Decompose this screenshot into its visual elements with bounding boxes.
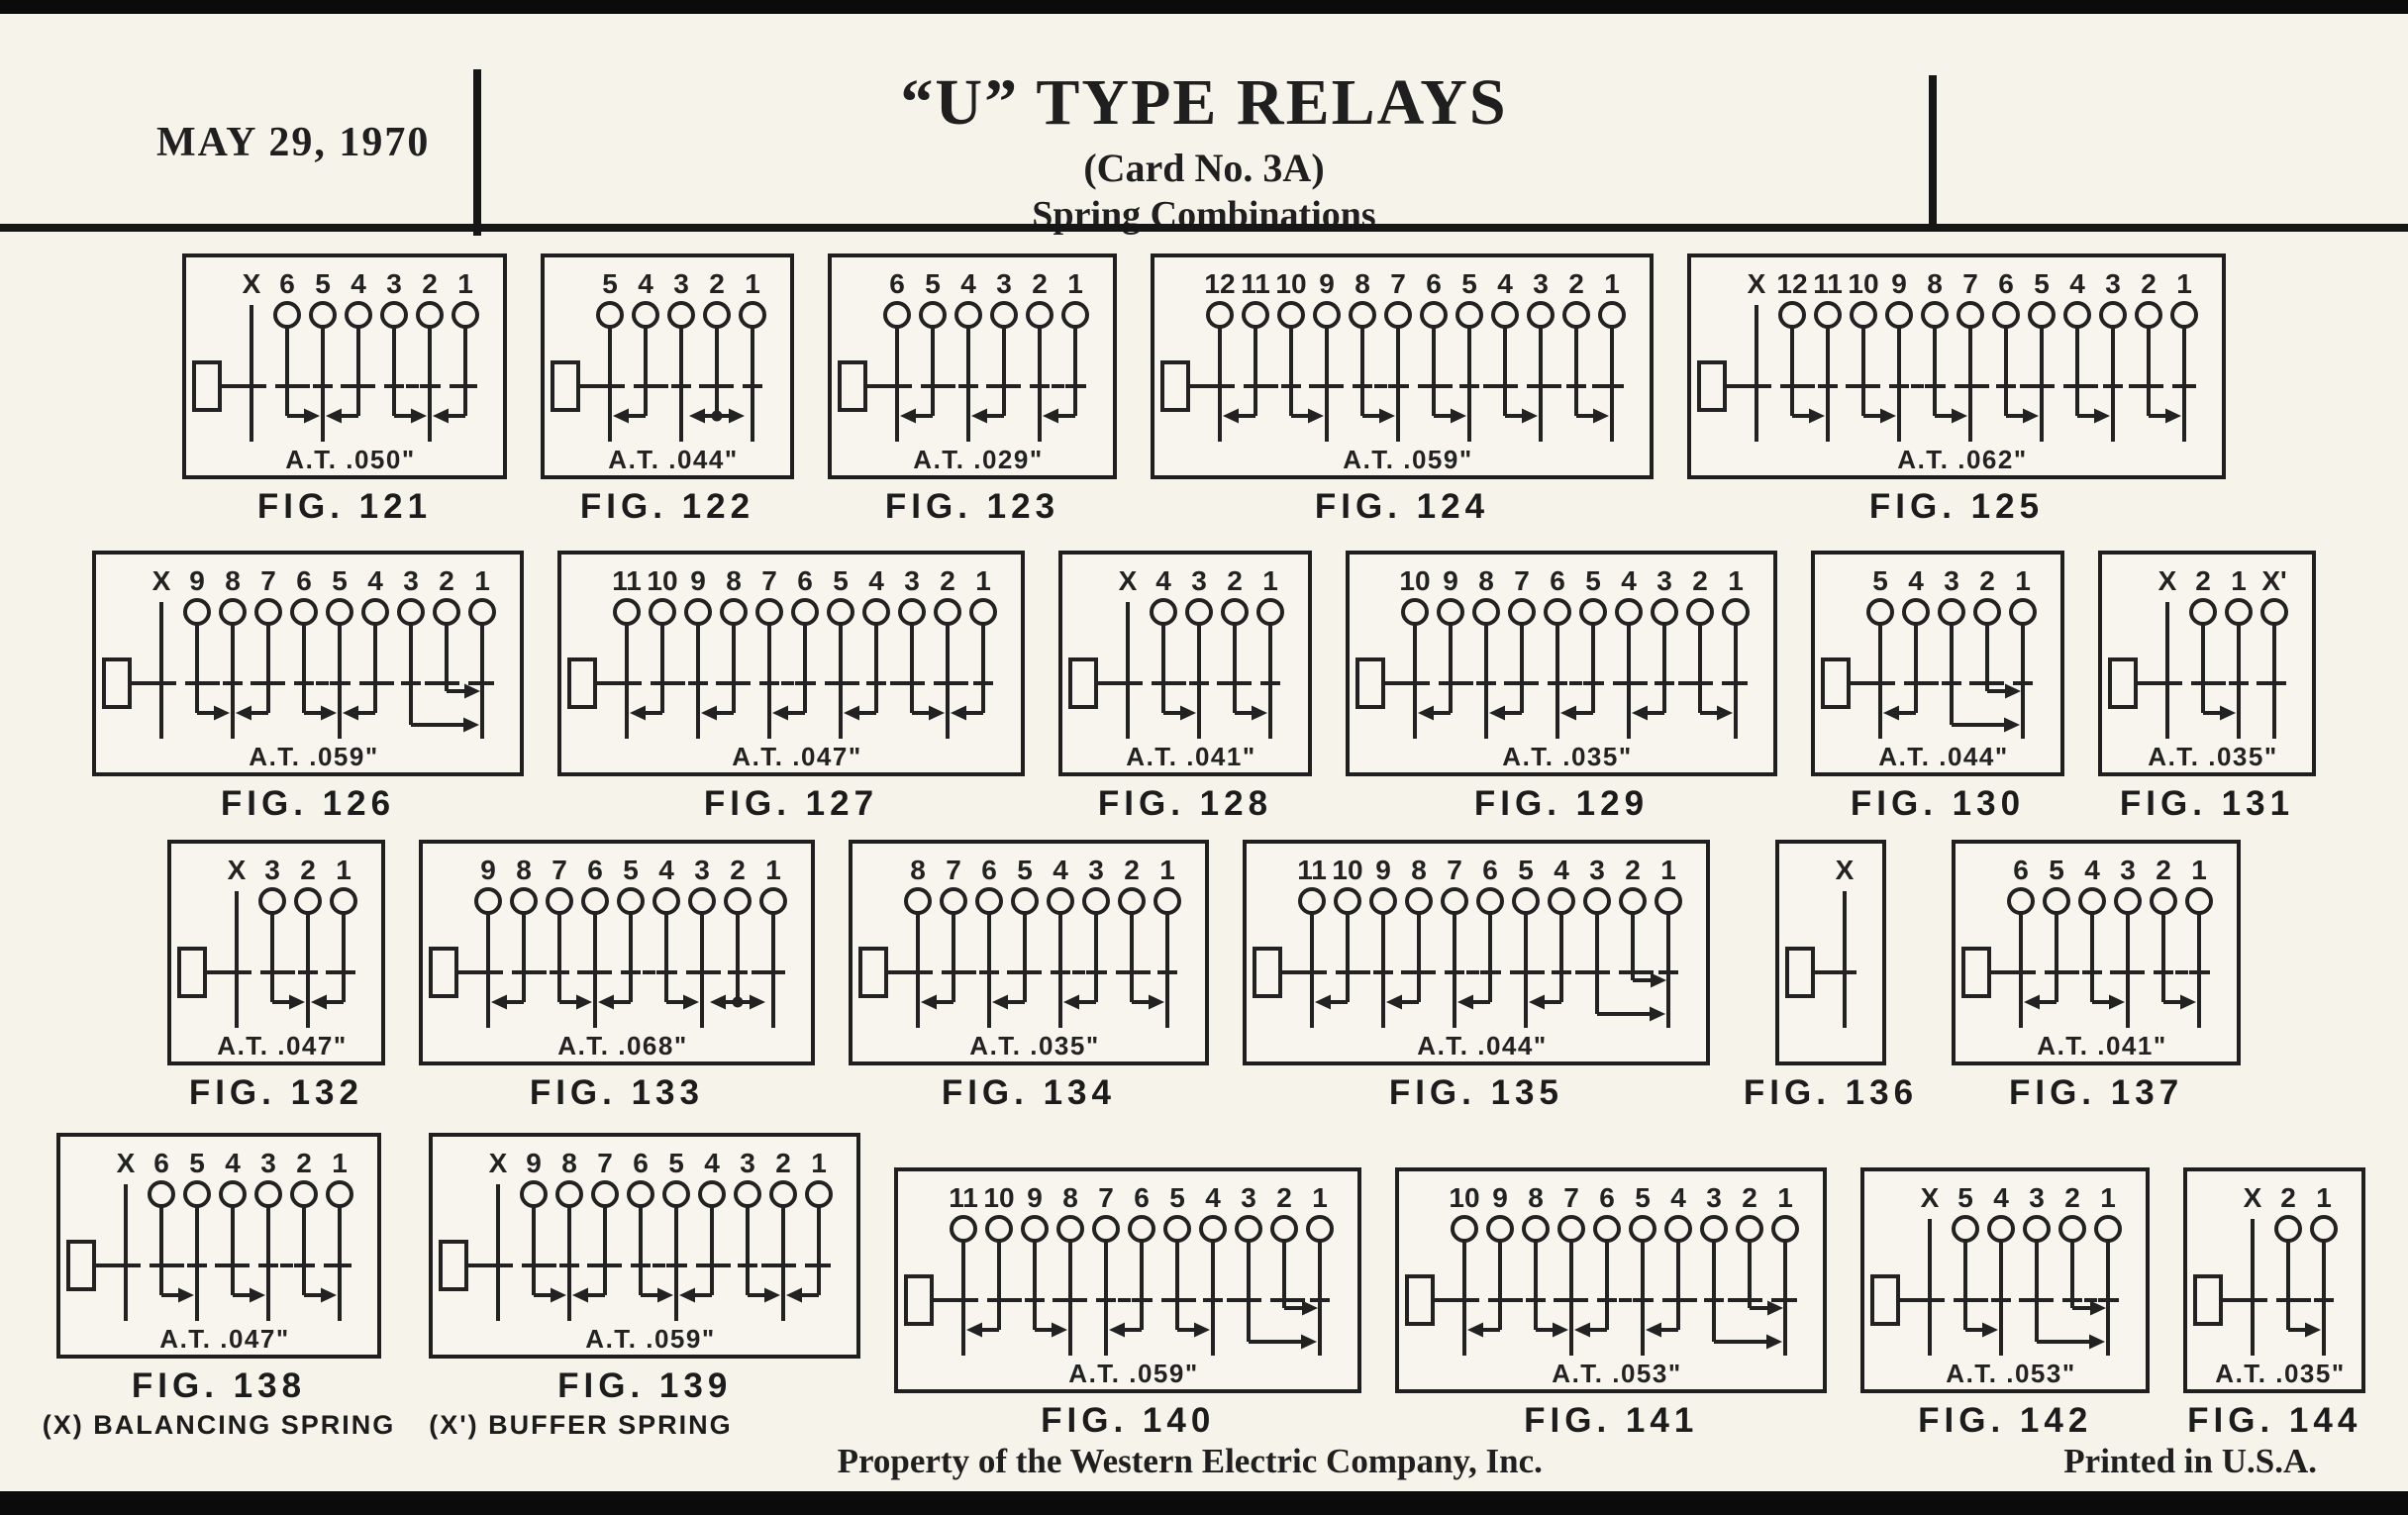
header: MAY 29, 1970 “U” TYPE RELAYS (Card No. 3… xyxy=(0,14,2408,227)
header-rule xyxy=(0,224,2408,232)
figure-box: X654321A.T. .050" xyxy=(182,253,507,479)
figure-note: (X) BALANCING SPRING xyxy=(43,1410,396,1441)
svg-text:X: X xyxy=(1921,1182,1940,1213)
svg-text:A.T. .053": A.T. .053" xyxy=(1947,1359,2076,1388)
figure-caption: FIG. 129 xyxy=(1474,784,1649,824)
svg-text:4: 4 xyxy=(367,565,383,596)
svg-text:A.T. .050": A.T. .050" xyxy=(285,445,415,474)
footer: Property of the Western Electric Company… xyxy=(0,1442,2408,1485)
svg-text:4: 4 xyxy=(638,268,653,299)
svg-text:6: 6 xyxy=(633,1148,649,1178)
svg-text:11: 11 xyxy=(1813,268,1843,299)
svg-text:10: 10 xyxy=(984,1182,1015,1213)
svg-text:12: 12 xyxy=(1776,268,1807,299)
svg-text:2: 2 xyxy=(439,565,454,596)
svg-text:3: 3 xyxy=(1191,565,1207,596)
svg-text:7: 7 xyxy=(761,565,777,596)
svg-text:4: 4 xyxy=(351,268,366,299)
svg-text:5: 5 xyxy=(1585,565,1601,596)
figure-box: 121110987654321A.T. .059" xyxy=(1151,253,1654,479)
scan-edge-top xyxy=(0,0,2408,14)
svg-text:X: X xyxy=(2158,565,2177,596)
svg-text:8: 8 xyxy=(225,565,241,596)
svg-text:X: X xyxy=(117,1148,136,1178)
svg-text:A.T. .059": A.T. .059" xyxy=(249,742,378,771)
svg-text:6: 6 xyxy=(1482,855,1498,885)
page-title: “U” TYPE RELAYS xyxy=(900,65,1507,141)
spring-diagram: X321A.T. .047" xyxy=(171,844,381,1061)
spring-diagram: X54321A.T. .053" xyxy=(1864,1171,2146,1389)
svg-text:8: 8 xyxy=(1478,565,1494,596)
spring-diagram: 87654321A.T. .035" xyxy=(853,844,1205,1061)
figure-note: (X') BUFFER SPRING xyxy=(429,1410,732,1441)
svg-text:2: 2 xyxy=(2064,1182,2080,1213)
svg-text:10: 10 xyxy=(1450,1182,1480,1213)
svg-text:X: X xyxy=(489,1148,508,1178)
spring-diagram: 654321A.T. .041" xyxy=(1956,844,2237,1061)
svg-text:1: 1 xyxy=(1159,855,1175,885)
svg-text:3: 3 xyxy=(2029,1182,2045,1213)
svg-text:A.T. .035": A.T. .035" xyxy=(2148,742,2277,771)
svg-text:9: 9 xyxy=(1443,565,1458,596)
figure-card-142: X54321A.T. .053"FIG. 142 xyxy=(1860,1167,2150,1441)
printed-note: Printed in U.S.A. xyxy=(2063,1442,2317,1481)
figure-row-3: X321A.T. .047"FIG. 132987654321A.T. .068… xyxy=(0,840,2408,1113)
spring-diagram: 54321A.T. .044" xyxy=(1815,555,2060,772)
svg-text:1: 1 xyxy=(457,268,473,299)
svg-text:5: 5 xyxy=(1957,1182,1973,1213)
svg-text:A.T. .044": A.T. .044" xyxy=(608,445,738,474)
svg-text:9: 9 xyxy=(1891,268,1907,299)
svg-text:A.T. .035": A.T. .035" xyxy=(2216,1359,2346,1388)
figure-caption: FIG. 132 xyxy=(189,1073,363,1113)
title-block: “U” TYPE RELAYS (Card No. 3A) Spring Com… xyxy=(900,65,1507,237)
svg-text:8: 8 xyxy=(1062,1182,1078,1213)
svg-text:1: 1 xyxy=(332,1148,348,1178)
svg-text:9: 9 xyxy=(526,1148,542,1178)
svg-text:3: 3 xyxy=(2105,268,2121,299)
svg-text:3: 3 xyxy=(694,855,710,885)
figure-card-129: 10987654321A.T. .035"FIG. 129 xyxy=(1346,551,1777,824)
svg-text:X: X xyxy=(2244,1182,2262,1213)
svg-text:6: 6 xyxy=(279,268,295,299)
svg-text:1: 1 xyxy=(2176,268,2192,299)
svg-text:7: 7 xyxy=(597,1148,613,1178)
svg-text:1: 1 xyxy=(1728,565,1744,596)
svg-text:4: 4 xyxy=(658,855,674,885)
svg-text:6: 6 xyxy=(1550,565,1565,596)
svg-text:X: X xyxy=(1119,565,1138,596)
svg-text:4: 4 xyxy=(960,268,976,299)
svg-text:5: 5 xyxy=(1017,855,1033,885)
figure-caption: FIG. 127 xyxy=(704,784,878,824)
svg-text:1: 1 xyxy=(811,1148,827,1178)
svg-text:A.T. .047": A.T. .047" xyxy=(217,1031,347,1060)
figure-card-132: X321A.T. .047"FIG. 132 xyxy=(167,840,385,1113)
figure-row-1: X654321A.T. .050"FIG. 12154321A.T. .044"… xyxy=(0,253,2408,527)
svg-text:1: 1 xyxy=(1067,268,1083,299)
figure-box: X4321A.T. .041" xyxy=(1058,551,1312,776)
svg-text:X': X' xyxy=(2261,565,2286,596)
figure-card-123: 654321A.T. .029"FIG. 123 xyxy=(828,253,1117,527)
svg-text:7: 7 xyxy=(1390,268,1406,299)
svg-text:1: 1 xyxy=(765,855,781,885)
figure-box: X321A.T. .047" xyxy=(167,840,385,1065)
svg-text:1: 1 xyxy=(474,565,490,596)
figures-grid: X654321A.T. .050"FIG. 12154321A.T. .044"… xyxy=(0,234,2408,1441)
svg-text:4: 4 xyxy=(704,1148,720,1178)
svg-text:4: 4 xyxy=(2084,855,2100,885)
figure-caption: FIG. 136 xyxy=(1744,1073,1918,1113)
svg-text:7: 7 xyxy=(260,565,276,596)
figure-box: 87654321A.T. .035" xyxy=(849,840,1209,1065)
svg-text:5: 5 xyxy=(189,1148,205,1178)
relay-card-page: MAY 29, 1970 “U” TYPE RELAYS (Card No. 3… xyxy=(0,0,2408,1515)
spring-diagram: 1110987654321A.T. .044" xyxy=(1247,844,1706,1061)
figure-card-133: 987654321A.T. .068"FIG. 133 xyxy=(419,840,815,1113)
svg-text:1: 1 xyxy=(2015,565,2031,596)
svg-text:2: 2 xyxy=(1979,565,1995,596)
figure-card-134: 87654321A.T. .035"FIG. 134 xyxy=(849,840,1209,1113)
figure-box: X54321A.T. .053" xyxy=(1860,1167,2150,1393)
svg-text:8: 8 xyxy=(1927,268,1943,299)
figure-box: X21X'A.T. .035" xyxy=(2098,551,2316,776)
svg-text:9: 9 xyxy=(189,565,205,596)
svg-text:A.T. .047": A.T. .047" xyxy=(159,1324,289,1354)
figure-box: X xyxy=(1775,840,1886,1065)
figure-box: X121110987654321A.T. .062" xyxy=(1687,253,2226,479)
spring-diagram: X987654321A.T. .059" xyxy=(433,1137,856,1355)
figure-caption: FIG. 138 xyxy=(132,1366,306,1406)
figure-caption: FIG. 142 xyxy=(1918,1401,2092,1441)
svg-text:5: 5 xyxy=(833,565,849,596)
figure-card-137: 654321A.T. .041"FIG. 137 xyxy=(1952,840,2241,1113)
svg-text:2: 2 xyxy=(1742,1182,1757,1213)
figure-card-122: 54321A.T. .044"FIG. 122 xyxy=(541,253,794,527)
svg-text:7: 7 xyxy=(1514,565,1530,596)
svg-text:8: 8 xyxy=(726,565,742,596)
svg-text:10: 10 xyxy=(1848,268,1878,299)
figure-box: 54321A.T. .044" xyxy=(541,253,794,479)
figure-caption: FIG. 141 xyxy=(1524,1401,1698,1441)
figure-caption: FIG. 139 xyxy=(557,1366,732,1406)
svg-text:1: 1 xyxy=(1312,1182,1328,1213)
spring-diagram: 10987654321A.T. .035" xyxy=(1350,555,1773,772)
svg-text:7: 7 xyxy=(1962,268,1978,299)
svg-text:1: 1 xyxy=(1262,565,1278,596)
figure-caption: FIG. 128 xyxy=(1098,784,1272,824)
svg-text:1: 1 xyxy=(1604,268,1620,299)
svg-text:3: 3 xyxy=(1088,855,1104,885)
svg-text:11: 11 xyxy=(612,565,642,596)
svg-text:X: X xyxy=(152,565,171,596)
figure-box: X21A.T. .035" xyxy=(2183,1167,2365,1393)
figure-box: 1110987654321A.T. .047" xyxy=(557,551,1025,776)
svg-text:2: 2 xyxy=(1032,268,1048,299)
svg-text:6: 6 xyxy=(153,1148,169,1178)
property-note: Property of the Western Electric Company… xyxy=(838,1442,1543,1481)
svg-text:3: 3 xyxy=(1241,1182,1256,1213)
figure-row-4: X654321A.T. .047"FIG. 138(X) BALANCING S… xyxy=(0,1133,2408,1441)
figure-caption: FIG. 130 xyxy=(1851,784,2025,824)
svg-text:5: 5 xyxy=(1635,1182,1651,1213)
scan-corner-mark xyxy=(2200,0,2408,10)
svg-text:X: X xyxy=(1836,855,1855,885)
svg-text:A.T. .053": A.T. .053" xyxy=(1553,1359,1682,1388)
figure-card-124: 121110987654321A.T. .059"FIG. 124 xyxy=(1151,253,1654,527)
figure-box: 54321A.T. .044" xyxy=(1811,551,2064,776)
svg-text:2: 2 xyxy=(1625,855,1641,885)
svg-text:3: 3 xyxy=(904,565,920,596)
svg-text:9: 9 xyxy=(1319,268,1335,299)
svg-text:3: 3 xyxy=(673,268,689,299)
figure-caption: FIG. 124 xyxy=(1315,487,1489,527)
svg-text:5: 5 xyxy=(602,268,618,299)
svg-text:4: 4 xyxy=(1053,855,1068,885)
svg-text:11: 11 xyxy=(1241,268,1270,299)
svg-text:A.T. .029": A.T. .029" xyxy=(913,445,1043,474)
svg-text:X: X xyxy=(1748,268,1766,299)
figure-row-2: X987654321A.T. .059"FIG. 126111098765432… xyxy=(0,551,2408,824)
figure-box: 10987654321A.T. .053" xyxy=(1395,1167,1827,1393)
svg-text:6: 6 xyxy=(1134,1182,1150,1213)
svg-text:3: 3 xyxy=(386,268,402,299)
figure-caption: FIG. 133 xyxy=(530,1073,704,1113)
svg-text:1: 1 xyxy=(2231,565,2247,596)
svg-text:10: 10 xyxy=(1332,855,1362,885)
svg-text:1: 1 xyxy=(336,855,351,885)
svg-text:X: X xyxy=(243,268,261,299)
figure-caption: FIG. 135 xyxy=(1389,1073,1563,1113)
svg-text:7: 7 xyxy=(946,855,961,885)
figure-caption: FIG. 134 xyxy=(942,1073,1116,1113)
svg-text:4: 4 xyxy=(2069,268,2085,299)
figure-caption: FIG. 144 xyxy=(2187,1401,2361,1441)
figure-box: 10987654321A.T. .035" xyxy=(1346,551,1777,776)
svg-text:8: 8 xyxy=(910,855,926,885)
figure-card-144: X21A.T. .035"FIG. 144 xyxy=(2183,1167,2365,1441)
svg-text:5: 5 xyxy=(315,268,331,299)
header-divider-right xyxy=(1929,75,1937,226)
svg-text:10: 10 xyxy=(647,565,677,596)
svg-text:4: 4 xyxy=(1497,268,1513,299)
figure-card-128: X4321A.T. .041"FIG. 128 xyxy=(1058,551,1312,824)
svg-text:A.T. .035": A.T. .035" xyxy=(969,1031,1099,1060)
svg-text:3: 3 xyxy=(740,1148,755,1178)
svg-text:7: 7 xyxy=(1563,1182,1579,1213)
svg-text:3: 3 xyxy=(996,268,1012,299)
scan-edge-bottom xyxy=(0,1491,2408,1515)
svg-text:3: 3 xyxy=(1706,1182,1722,1213)
svg-text:7: 7 xyxy=(1098,1182,1114,1213)
figure-card-121: X654321A.T. .050"FIG. 121 xyxy=(182,253,507,527)
svg-text:6: 6 xyxy=(797,565,813,596)
figure-card-140: 1110987654321A.T. .059"FIG. 140 xyxy=(894,1167,1361,1441)
svg-text:5: 5 xyxy=(1169,1182,1185,1213)
svg-text:9: 9 xyxy=(1027,1182,1043,1213)
svg-text:4: 4 xyxy=(1993,1182,2009,1213)
figure-card-127: 1110987654321A.T. .047"FIG. 127 xyxy=(557,551,1025,824)
svg-text:5: 5 xyxy=(1461,268,1477,299)
svg-text:5: 5 xyxy=(1518,855,1534,885)
figure-caption: FIG. 121 xyxy=(257,487,432,527)
svg-text:3: 3 xyxy=(264,855,280,885)
figure-card-136: XFIG. 136 xyxy=(1744,840,1918,1113)
spring-diagram: X654321A.T. .050" xyxy=(186,257,503,475)
figure-box: X654321A.T. .047" xyxy=(56,1133,381,1359)
card-number: (Card No. 3A) xyxy=(900,145,1507,191)
svg-text:9: 9 xyxy=(1375,855,1391,885)
figure-box: 1110987654321A.T. .059" xyxy=(894,1167,1361,1393)
svg-text:3: 3 xyxy=(1533,268,1549,299)
svg-text:6: 6 xyxy=(2013,855,2029,885)
svg-text:5: 5 xyxy=(925,268,941,299)
svg-text:2: 2 xyxy=(775,1148,791,1178)
svg-text:3: 3 xyxy=(1589,855,1605,885)
svg-text:6: 6 xyxy=(889,268,905,299)
svg-text:2: 2 xyxy=(1227,565,1243,596)
svg-text:5: 5 xyxy=(2049,855,2064,885)
svg-text:1: 1 xyxy=(975,565,991,596)
svg-text:2: 2 xyxy=(2156,855,2171,885)
svg-text:X: X xyxy=(228,855,247,885)
svg-text:1: 1 xyxy=(745,268,760,299)
svg-text:8: 8 xyxy=(1528,1182,1544,1213)
spring-diagram: 987654321A.T. .068" xyxy=(423,844,811,1061)
svg-text:2: 2 xyxy=(2195,565,2211,596)
figure-card-135: 1110987654321A.T. .044"FIG. 135 xyxy=(1243,840,1710,1113)
svg-text:11: 11 xyxy=(949,1182,978,1213)
svg-text:6: 6 xyxy=(981,855,997,885)
spring-diagram: X4321A.T. .041" xyxy=(1062,555,1308,772)
svg-text:A.T. .044": A.T. .044" xyxy=(1417,1031,1547,1060)
figure-caption: FIG. 137 xyxy=(2009,1073,2183,1113)
svg-text:9: 9 xyxy=(480,855,496,885)
svg-text:4: 4 xyxy=(1908,565,1924,596)
svg-text:3: 3 xyxy=(2120,855,2136,885)
svg-text:2: 2 xyxy=(1692,565,1708,596)
svg-text:A.T. .068": A.T. .068" xyxy=(557,1031,687,1060)
spring-diagram: 1110987654321A.T. .047" xyxy=(561,555,1021,772)
svg-text:6: 6 xyxy=(1426,268,1442,299)
svg-text:2: 2 xyxy=(709,268,725,299)
svg-text:6: 6 xyxy=(1599,1182,1615,1213)
svg-text:2: 2 xyxy=(2280,1182,2296,1213)
svg-text:5: 5 xyxy=(668,1148,684,1178)
figure-card-138: X654321A.T. .047"FIG. 138(X) BALANCING S… xyxy=(43,1133,396,1441)
figure-caption: FIG. 140 xyxy=(1041,1401,1215,1441)
figure-caption: FIG. 125 xyxy=(1869,487,2044,527)
svg-text:A.T. .041": A.T. .041" xyxy=(2037,1031,2166,1060)
figure-card-141: 10987654321A.T. .053"FIG. 141 xyxy=(1395,1167,1827,1441)
figure-box: 654321A.T. .041" xyxy=(1952,840,2241,1065)
svg-text:1: 1 xyxy=(2100,1182,2116,1213)
svg-text:12: 12 xyxy=(1204,268,1235,299)
svg-text:10: 10 xyxy=(1399,565,1430,596)
svg-text:A.T. .044": A.T. .044" xyxy=(1878,742,2008,771)
spring-diagram: 10987654321A.T. .053" xyxy=(1399,1171,1823,1389)
svg-text:A.T. .059": A.T. .059" xyxy=(586,1324,716,1354)
svg-text:2: 2 xyxy=(730,855,746,885)
spring-diagram: X xyxy=(1779,844,1882,1061)
svg-text:8: 8 xyxy=(516,855,532,885)
svg-text:5: 5 xyxy=(1872,565,1888,596)
svg-text:6: 6 xyxy=(1998,268,2014,299)
svg-text:2: 2 xyxy=(1568,268,1584,299)
svg-text:5: 5 xyxy=(623,855,639,885)
spring-diagram: 121110987654321A.T. .059" xyxy=(1154,257,1650,475)
svg-text:A.T. .047": A.T. .047" xyxy=(732,742,861,771)
svg-text:A.T. .059": A.T. .059" xyxy=(1343,445,1472,474)
svg-text:9: 9 xyxy=(1492,1182,1508,1213)
svg-text:A.T. .035": A.T. .035" xyxy=(1502,742,1632,771)
svg-text:A.T. .062": A.T. .062" xyxy=(1897,445,2027,474)
svg-text:4: 4 xyxy=(1205,1182,1221,1213)
svg-text:2: 2 xyxy=(1276,1182,1292,1213)
svg-text:1: 1 xyxy=(1660,855,1676,885)
svg-text:3: 3 xyxy=(1656,565,1672,596)
figure-caption: FIG. 123 xyxy=(885,487,1059,527)
svg-text:A.T. .059": A.T. .059" xyxy=(1069,1359,1199,1388)
issue-date: MAY 29, 1970 xyxy=(156,119,430,166)
figure-card-125: X121110987654321A.T. .062"FIG. 125 xyxy=(1687,253,2226,527)
header-divider-left xyxy=(473,69,481,236)
spring-diagram: X21A.T. .035" xyxy=(2187,1171,2361,1389)
svg-text:2: 2 xyxy=(1124,855,1140,885)
figure-caption: FIG. 122 xyxy=(580,487,754,527)
svg-text:3: 3 xyxy=(260,1148,276,1178)
figure-box: X987654321A.T. .059" xyxy=(429,1133,860,1359)
svg-text:4: 4 xyxy=(1670,1182,1686,1213)
svg-text:8: 8 xyxy=(1411,855,1427,885)
figure-card-126: X987654321A.T. .059"FIG. 126 xyxy=(92,551,524,824)
figure-card-139: X987654321A.T. .059"FIG. 139(X') BUFFER … xyxy=(429,1133,860,1441)
figure-box: 1110987654321A.T. .044" xyxy=(1243,840,1710,1065)
spring-diagram: X21X'A.T. .035" xyxy=(2102,555,2312,772)
figure-box: 987654321A.T. .068" xyxy=(419,840,815,1065)
svg-text:4: 4 xyxy=(1155,565,1171,596)
svg-text:5: 5 xyxy=(2034,268,2050,299)
svg-text:10: 10 xyxy=(1275,268,1306,299)
svg-text:8: 8 xyxy=(1354,268,1370,299)
figure-box: 654321A.T. .029" xyxy=(828,253,1117,479)
svg-text:5: 5 xyxy=(332,565,348,596)
svg-text:6: 6 xyxy=(296,565,312,596)
svg-text:11: 11 xyxy=(1297,855,1327,885)
svg-text:7: 7 xyxy=(1447,855,1462,885)
svg-text:2: 2 xyxy=(296,1148,312,1178)
spring-diagram: X987654321A.T. .059" xyxy=(96,555,520,772)
svg-text:1: 1 xyxy=(2191,855,2207,885)
svg-text:2: 2 xyxy=(2141,268,2157,299)
svg-text:A.T. .041": A.T. .041" xyxy=(1126,742,1255,771)
svg-text:2: 2 xyxy=(300,855,316,885)
svg-text:7: 7 xyxy=(552,855,567,885)
svg-text:4: 4 xyxy=(1554,855,1569,885)
svg-text:2: 2 xyxy=(940,565,955,596)
svg-text:4: 4 xyxy=(225,1148,241,1178)
svg-text:6: 6 xyxy=(587,855,603,885)
spring-diagram: 654321A.T. .029" xyxy=(832,257,1113,475)
svg-text:2: 2 xyxy=(422,268,438,299)
svg-text:4: 4 xyxy=(1621,565,1637,596)
spring-diagram: 1110987654321A.T. .059" xyxy=(898,1171,1357,1389)
svg-text:1: 1 xyxy=(2316,1182,2332,1213)
svg-text:4: 4 xyxy=(868,565,884,596)
figure-card-130: 54321A.T. .044"FIG. 130 xyxy=(1811,551,2064,824)
figure-box: X987654321A.T. .059" xyxy=(92,551,524,776)
spring-diagram: X121110987654321A.T. .062" xyxy=(1691,257,2222,475)
